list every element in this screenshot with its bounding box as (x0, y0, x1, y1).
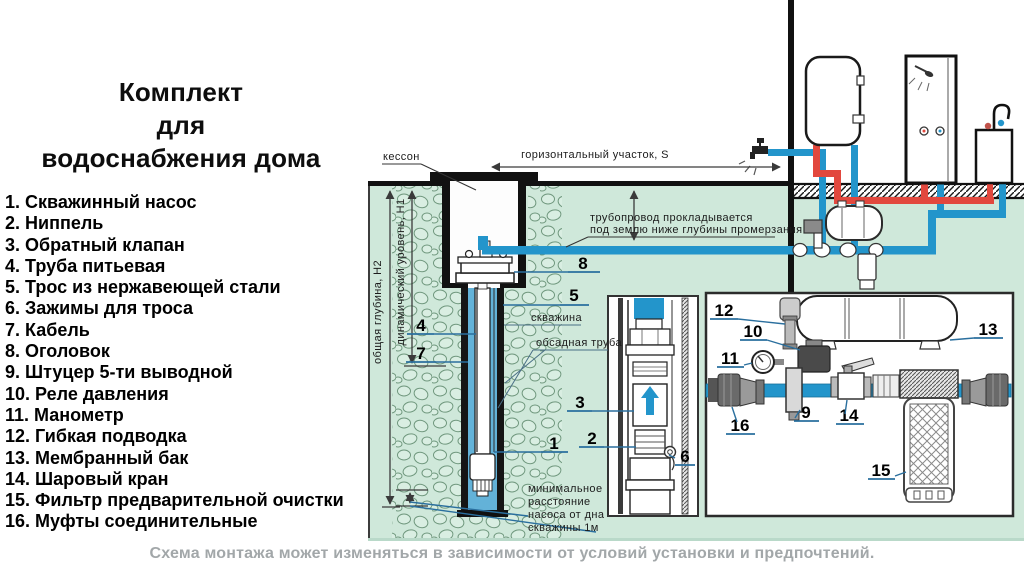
callout-9: 9 (801, 403, 810, 422)
nipple-detail (635, 430, 665, 454)
compression-fitting (630, 329, 670, 345)
shower-cabin (906, 56, 956, 183)
outdoor-faucet-icon (739, 138, 768, 175)
callout-14: 14 (840, 406, 859, 425)
label-pipeline-note-1: трубопровод прокладывается (590, 212, 753, 224)
callout-1: 1 (549, 434, 558, 453)
label-min-distance-1: минимальное (528, 483, 602, 495)
callout-4: 4 (416, 316, 426, 335)
label-horizontal-section: горизонтальный участок, S (521, 149, 669, 161)
label-total-depth: общая глубина, Н2 (372, 260, 384, 364)
callout-16: 16 (731, 416, 750, 435)
sink-cold-handle (998, 120, 1004, 126)
boiler (806, 57, 864, 145)
pump-detail-panel (608, 296, 698, 516)
label-min-distance-4: скважины 1м (528, 522, 599, 534)
callout-3: 3 (575, 393, 584, 412)
flexible-hose (783, 316, 797, 349)
label-dynamic-level: динамический уровень, Н1 (395, 199, 407, 346)
label-casing-pipe: обсадная труба (536, 337, 622, 349)
union-fitting (873, 375, 899, 397)
label-borehole: скважина (531, 312, 583, 324)
callout-10: 10 (744, 322, 763, 341)
callout-6: 6 (680, 447, 689, 466)
five-way-fitting (786, 368, 802, 420)
pre-filter (900, 370, 958, 502)
installation-diagram: кессон горизонтальный участок, S трубопр… (0, 0, 1024, 576)
pressure-tank-small (826, 201, 882, 240)
submersible-pump (470, 454, 495, 496)
sink-hot-handle (985, 123, 991, 129)
label-min-distance-2: расстояние (528, 496, 591, 508)
label-caisson: кессон (383, 151, 420, 163)
callout-15: 15 (872, 461, 891, 480)
callout-7: 7 (416, 344, 425, 363)
borehole-well (457, 288, 508, 517)
callout-13: 13 (979, 320, 998, 339)
pipe-water-detail (634, 298, 664, 319)
check-valve-detail (633, 384, 667, 426)
pressure-switch-small (804, 220, 822, 233)
footer-note: Схема монтажа может изменяться в зависим… (0, 545, 1024, 563)
callout-2: 2 (587, 429, 596, 448)
pump-top-detail (626, 458, 674, 514)
callout-12: 12 (715, 301, 734, 320)
label-pipeline-note-2: под землю ниже глубины промерзания (590, 224, 802, 236)
callout-11: 11 (721, 349, 739, 368)
filter-small (858, 254, 876, 289)
label-min-distance-3: насоса от дна (528, 509, 605, 521)
callout-8: 8 (578, 254, 587, 273)
infographic-water-supply-kit: Комплект для водоснабжения дома 1. Скваж… (0, 0, 1024, 576)
ground-line (368, 181, 790, 186)
callout-5: 5 (569, 286, 578, 305)
